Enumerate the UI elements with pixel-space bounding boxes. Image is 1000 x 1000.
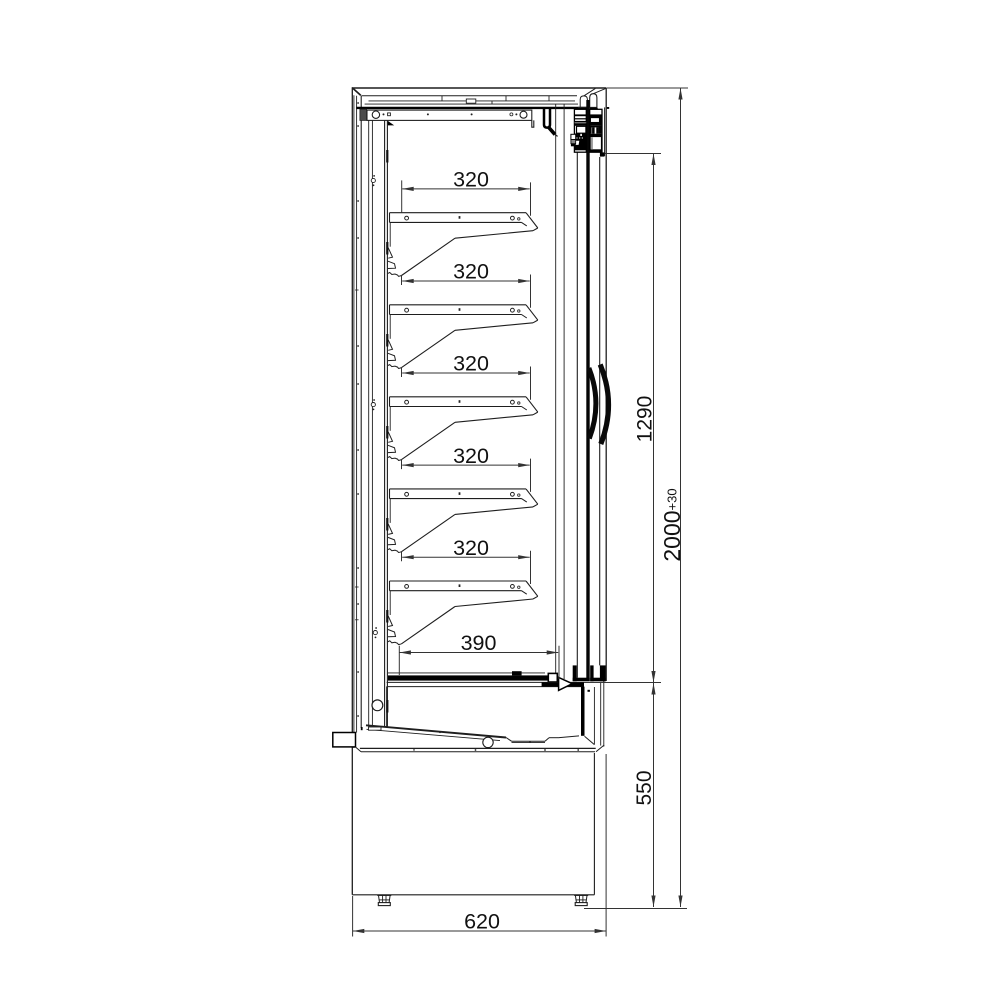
svg-text:1290: 1290 xyxy=(634,396,657,443)
svg-text:390: 390 xyxy=(461,631,497,655)
svg-text:320: 320 xyxy=(453,168,489,192)
svg-text:320: 320 xyxy=(453,352,489,376)
svg-text:320: 320 xyxy=(453,536,489,560)
svg-text:550: 550 xyxy=(633,770,656,805)
svg-text:320: 320 xyxy=(453,260,489,284)
svg-text:320: 320 xyxy=(453,444,489,468)
svg-text:620: 620 xyxy=(464,910,500,934)
